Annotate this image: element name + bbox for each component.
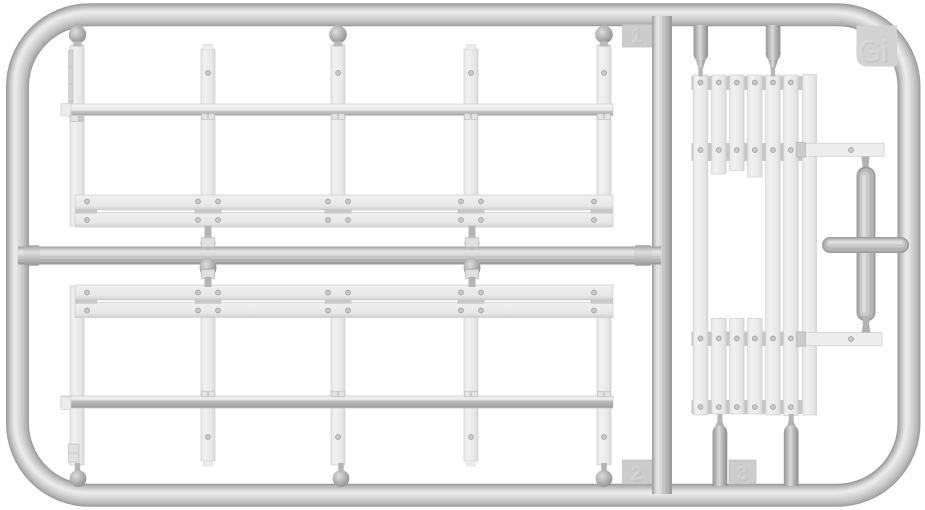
- svg-text:2: 2: [632, 464, 643, 486]
- svg-text:1: 1: [632, 26, 643, 48]
- svg-text:3: 3: [737, 464, 748, 486]
- svg-text:Gi: Gi: [859, 36, 889, 69]
